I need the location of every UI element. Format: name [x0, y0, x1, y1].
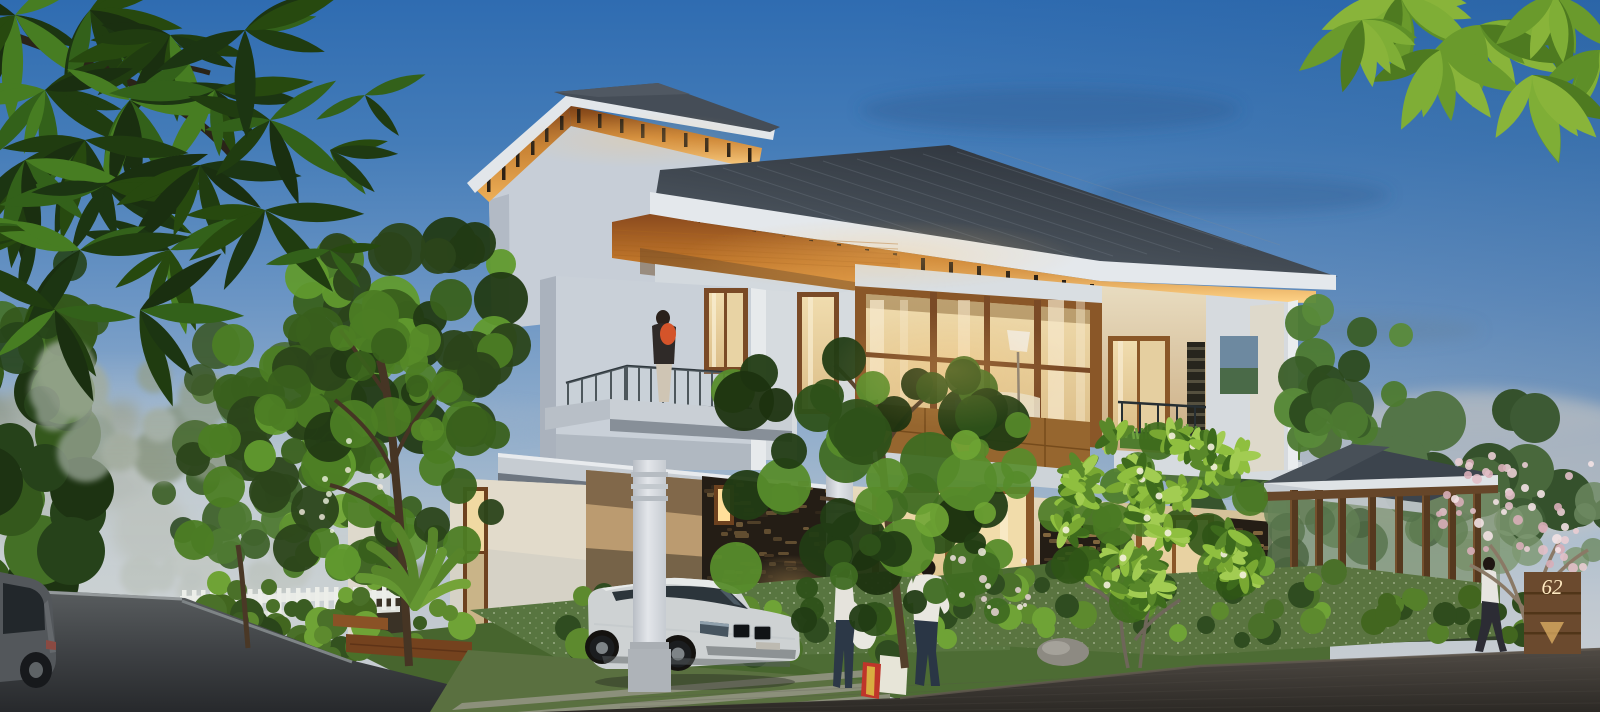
svg-text:62: 62 [1542, 575, 1564, 599]
